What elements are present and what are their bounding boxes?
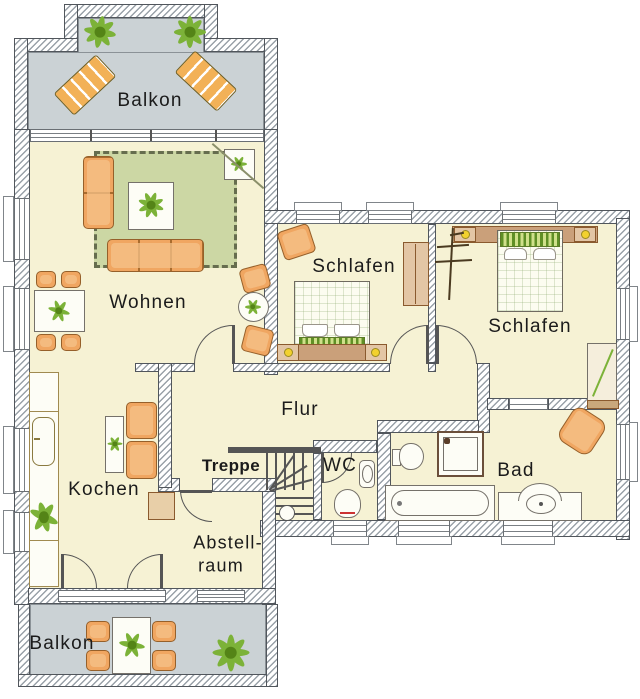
room-label-flur: Flur	[281, 399, 319, 421]
room-label-abstellraum-line2: raum	[198, 556, 244, 577]
wall	[14, 38, 28, 132]
window-sill	[629, 422, 638, 482]
wall	[616, 218, 630, 540]
kitchen-counter-divider	[30, 411, 58, 412]
wall	[264, 38, 278, 132]
lamp-icon	[284, 348, 293, 357]
wardrobe-divider	[415, 244, 416, 304]
dining-chair	[36, 334, 56, 351]
window	[14, 288, 30, 350]
balcony-chair	[152, 650, 176, 671]
wall	[262, 478, 276, 605]
stairs-tread	[266, 453, 268, 490]
plant-icon	[174, 16, 206, 48]
lamp-icon	[371, 348, 380, 357]
window-sill	[3, 286, 14, 352]
pillow	[533, 248, 556, 260]
room-label-abstellraum-line1: Abstell-	[193, 533, 263, 554]
dining-chair	[36, 271, 56, 288]
window-sill	[3, 510, 14, 554]
kitchen-faucet	[34, 438, 40, 440]
balcony-door-glazing	[58, 590, 166, 602]
wall	[233, 363, 390, 372]
door-leaf	[426, 325, 429, 364]
kitchen-chair	[126, 441, 157, 479]
plant-icon	[29, 500, 59, 534]
sofa	[107, 239, 204, 272]
window-sill	[396, 536, 452, 545]
window	[14, 198, 30, 260]
stairs-newel	[279, 505, 295, 521]
plant-icon	[48, 300, 70, 322]
window	[368, 210, 412, 224]
stairs-tread	[302, 453, 304, 490]
room-label-balkon-top: Balkon	[117, 90, 182, 112]
pillow	[302, 324, 328, 337]
window	[296, 210, 340, 224]
window	[30, 129, 264, 142]
window-mullion	[150, 130, 152, 141]
wall	[313, 440, 377, 453]
floorplan: Balkon Wohnen Schlafen Schlafen Flur Tre…	[0, 0, 640, 699]
wall	[158, 363, 172, 488]
door-leaf	[232, 325, 235, 364]
room-label-schlafen-left: Schlafen	[312, 256, 396, 278]
wall	[18, 674, 278, 687]
room-label-treppe: Treppe	[202, 456, 260, 476]
wall	[428, 363, 436, 372]
plant-icon	[138, 192, 164, 218]
pillow	[504, 248, 527, 260]
wall	[487, 398, 509, 410]
window-sill	[3, 426, 14, 494]
window	[197, 590, 245, 602]
lamp-icon	[581, 230, 590, 239]
wc-toilet-seat	[340, 512, 355, 514]
room-label-schlafen-right: Schlafen	[488, 316, 572, 338]
window	[503, 520, 553, 537]
pillow	[334, 324, 360, 337]
kitchen-counter-divider	[30, 540, 58, 541]
window	[502, 210, 556, 224]
shower-drain	[444, 438, 450, 444]
wall	[428, 224, 436, 363]
sofa	[83, 156, 114, 229]
wall	[266, 604, 278, 687]
plant-icon	[84, 16, 116, 48]
window	[616, 288, 630, 340]
stairs-tread	[284, 453, 286, 490]
balcony-chair	[152, 621, 176, 642]
door-leaf	[61, 554, 64, 588]
door-leaf	[436, 325, 439, 364]
kitchen-sink	[32, 417, 55, 466]
window-sill	[331, 536, 369, 545]
room-label-bad: Bad	[497, 460, 534, 482]
room-label-wohnen: Wohnen	[109, 292, 187, 314]
window	[14, 428, 30, 492]
window-sill	[3, 196, 14, 262]
stairs-tread	[276, 497, 313, 499]
plant-icon	[212, 634, 249, 671]
room-label-balkon-bottom: Balkon	[29, 633, 94, 655]
window-sill	[500, 202, 558, 211]
shelf-base	[587, 400, 619, 409]
window	[333, 520, 367, 537]
window	[509, 398, 548, 410]
window-sill	[629, 286, 638, 342]
bathtub-drain	[397, 501, 402, 506]
plant-icon	[119, 632, 145, 658]
door-leaf	[160, 554, 163, 588]
room-label-kochen: Kochen	[68, 479, 140, 501]
window-mullion	[90, 130, 92, 141]
window	[616, 424, 630, 480]
bad-toilet	[399, 443, 424, 470]
kitchen-cabinet	[148, 492, 175, 520]
dining-chair	[61, 334, 81, 351]
window	[398, 520, 450, 537]
window-sill	[366, 202, 414, 211]
window	[14, 512, 30, 552]
window-sill	[501, 536, 555, 545]
window-sill	[294, 202, 342, 211]
window-mullion	[215, 130, 217, 141]
wc-sink-basin	[362, 465, 373, 483]
plant-icon	[107, 436, 122, 451]
kitchen-chair	[126, 402, 157, 439]
kitchen-counter	[29, 372, 59, 587]
vanity-faucet	[539, 502, 543, 506]
dining-chair	[61, 271, 81, 288]
bathtub-basin	[391, 490, 489, 516]
plant-icon	[245, 299, 261, 315]
room-label-wc: WC	[323, 455, 357, 477]
bed-blanket	[500, 232, 560, 247]
door-leaf	[180, 490, 212, 493]
